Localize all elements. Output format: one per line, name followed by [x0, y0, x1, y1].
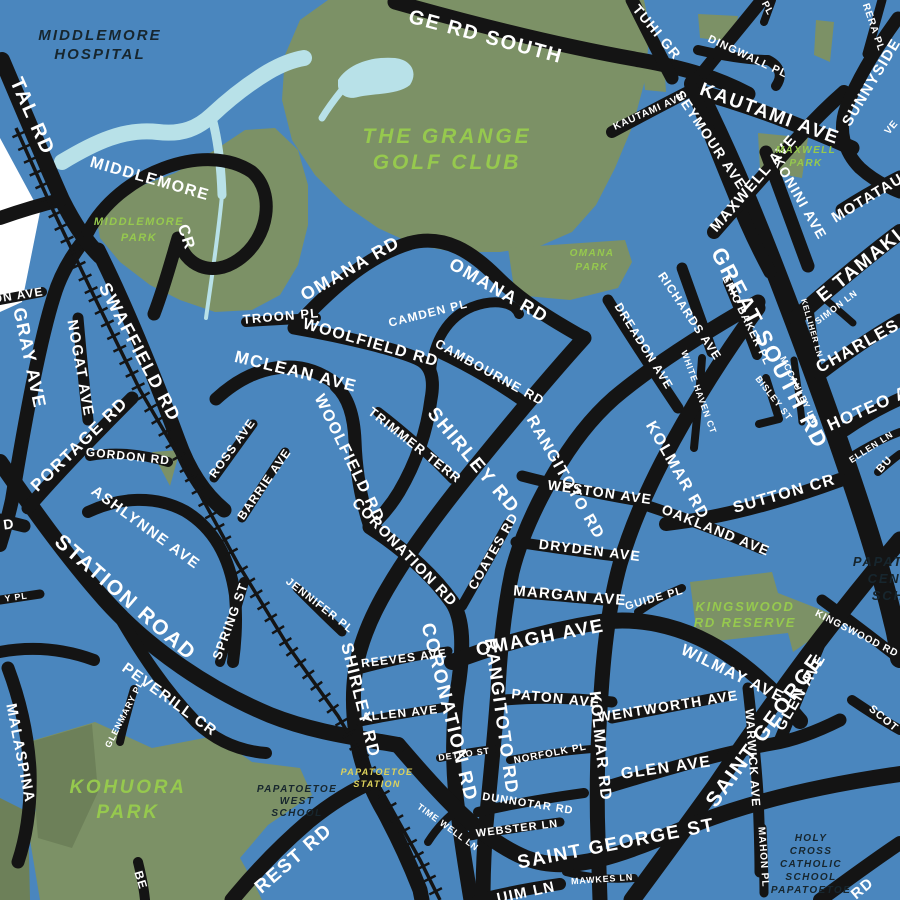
street-label-d: D: [2, 515, 16, 532]
map-poster: GE RD SOUTHTAL RDMIDDLEMORECRSWAFFIELD R…: [0, 0, 900, 900]
papatoetoe-map: GE RD SOUTHTAL RDMIDDLEMORECRSWAFFIELD R…: [0, 0, 900, 900]
area-label-kingswood-rd-reserve: KINGSWOODRD RESERVE: [694, 599, 797, 630]
